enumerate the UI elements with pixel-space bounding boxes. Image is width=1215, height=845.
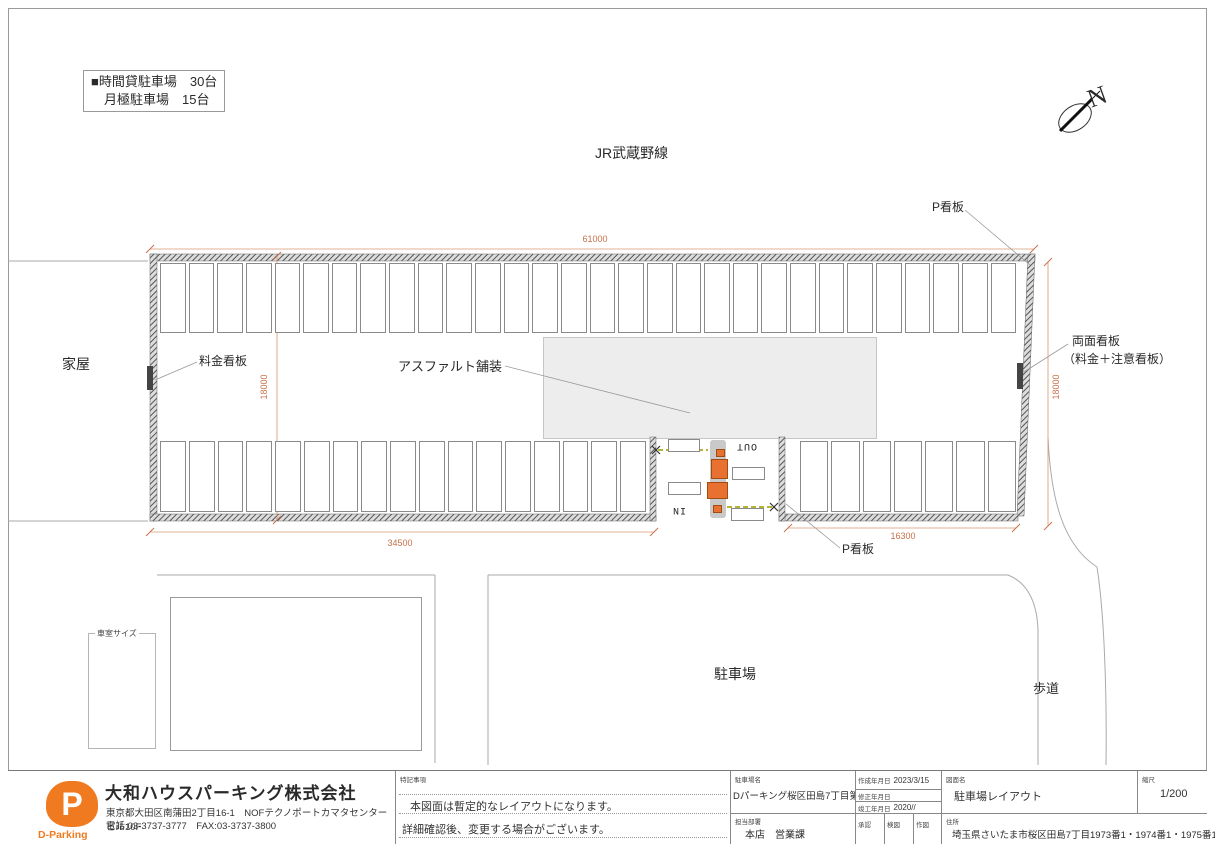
parking-area-label: 駐車場: [714, 664, 756, 684]
parking-stall: [360, 263, 386, 333]
completed-label: 竣工年月日: [858, 803, 891, 813]
parking-stall: [218, 441, 244, 512]
dim-top: 61000: [560, 234, 630, 244]
address-header: 住所: [946, 816, 959, 826]
parking-stall: [189, 263, 215, 333]
parking-stall: [800, 441, 828, 512]
dept-cell: 担当部署 本店 営業課: [730, 813, 855, 844]
dates-cell: 作成年月日 2023/3/15 修正年月日 竣工年月日 2020// 承認 検図…: [855, 771, 941, 844]
created-value: 2023/3/15: [894, 776, 930, 785]
double-sign-symbol: [1017, 363, 1023, 389]
site-name-value: Dパーキング桜区田島7丁目第1: [733, 788, 855, 802]
p-sign-bottom-label: P看板: [842, 540, 874, 557]
dim-right: 18000: [1051, 363, 1061, 411]
note-line-1: 本図面は暫定的なレイアウトになります。: [410, 798, 618, 814]
date-row-revised: 修正年月日: [856, 789, 942, 801]
parking-stall: [446, 263, 472, 333]
parking-stall: [847, 263, 873, 333]
title-block: P D-Parking 大和ハウスパーキング株式会社 東京都大田区南蒲田2丁目1…: [8, 770, 1207, 844]
parking-stall: [448, 441, 474, 512]
dim-left: 18000: [259, 363, 269, 411]
parking-stall: [676, 263, 702, 333]
lane-marker: [668, 439, 700, 452]
site-name-header: 駐車場名: [735, 774, 761, 784]
divider: [399, 837, 727, 838]
parking-stall: [476, 441, 502, 512]
note-line-2: 詳細確認後、変更する場合がございます。: [402, 821, 610, 837]
fee-sign-symbol: [147, 366, 153, 390]
parking-stall: [894, 441, 922, 512]
scale-header: 縮尺: [1142, 774, 1155, 784]
site-name-cell: 駐車場名 Dパーキング桜区田島7丁目第1: [730, 771, 855, 813]
parking-stall: [160, 441, 186, 512]
lane-marker: [668, 482, 701, 495]
stall-row-bottom-left: [160, 441, 646, 512]
parking-stall: [332, 263, 358, 333]
parking-stall: [962, 263, 988, 333]
drawing-name-cell: 図面名 駐車場レイアウト: [941, 771, 1137, 813]
parking-stall: [733, 263, 759, 333]
dim-bottom-right: 16300: [868, 531, 938, 541]
parking-stall: [246, 263, 272, 333]
p-sign-top-label: P看板: [932, 198, 964, 215]
parking-stall: [647, 263, 673, 333]
parking-stall: [475, 263, 501, 333]
address-cell: 住所 埼玉県さいたま市桜区田島7丁目1973番1・1974番1・1975番1: [941, 813, 1207, 844]
lane-marker: [732, 467, 765, 480]
parking-stall: [532, 263, 558, 333]
legend-line-monthly: 月極駐車場 15台: [91, 91, 217, 109]
address-value: 埼玉県さいたま市桜区田島7丁目1973番1・1974番1・1975番1: [952, 827, 1215, 841]
parking-stall: [819, 263, 845, 333]
d-parking-logo-icon: P: [46, 781, 98, 827]
lane-out-label: OUT: [736, 440, 757, 451]
company-cell: P D-Parking 大和ハウスパーキング株式会社 東京都大田区南蒲田2丁目1…: [8, 771, 395, 844]
loop-sensor: [716, 449, 725, 457]
approval-cell-label: 検図: [885, 822, 900, 829]
parking-stall: [333, 441, 359, 512]
approval-cell-label: 作図: [914, 822, 929, 829]
dim-bottom-left: 34500: [365, 538, 435, 548]
parking-stall: [534, 441, 560, 512]
parking-stall: [831, 441, 859, 512]
d-parking-logo-text: D-Parking: [38, 829, 88, 841]
parking-stall: [933, 263, 959, 333]
company-name: 大和ハウスパーキング株式会社: [105, 779, 357, 804]
parking-stall: [620, 441, 646, 512]
parking-stall: [418, 263, 444, 333]
sidewalk-label: 歩道: [1033, 678, 1059, 697]
fee-sign-label: 料金看板: [199, 352, 247, 369]
dept-value: 本店 営業課: [745, 826, 805, 841]
parking-stall: [876, 263, 902, 333]
date-row-completed: 竣工年月日 2020//: [856, 801, 942, 813]
double-sign-label-1: 両面看板: [1072, 332, 1120, 349]
parking-stall: [790, 263, 816, 333]
created-label: 作成年月日: [858, 775, 891, 785]
parking-stall: [217, 263, 243, 333]
parking-stall: [361, 441, 387, 512]
parking-stall: [704, 263, 730, 333]
house-bottom-outline: [170, 597, 422, 751]
notes-cell: 特記事項 本図面は暫定的なレイアウトになります。 詳細確認後、変更する場合がござ…: [395, 771, 730, 844]
parking-stall: [591, 441, 617, 512]
parking-stall: [761, 263, 787, 333]
railway-label: JR武蔵野線: [595, 143, 668, 163]
parking-stall: [246, 441, 272, 512]
company-tel: 電話:03-3737-3777 FAX:03-3737-3800: [106, 818, 276, 832]
parking-stall: [590, 263, 616, 333]
parking-stall: [988, 441, 1016, 512]
stall-row-top: [160, 263, 1016, 333]
stall-size-box: [88, 633, 156, 749]
revised-label: 修正年月日: [858, 791, 891, 801]
ticket-machine: [707, 482, 728, 499]
parking-stall: [956, 441, 984, 512]
approval-cells: 承認 検図 作図: [856, 813, 942, 844]
divider: [399, 813, 727, 814]
approval-cell-label: 承認: [856, 822, 871, 829]
legend-box: ■時間貸駐車場 30台 月極駐車場 15台: [83, 70, 225, 112]
legend-line-hourly: ■時間貸駐車場 30台: [91, 73, 217, 91]
parking-stall: [160, 263, 186, 333]
drawing-sheet: ■時間貸駐車場 30台 月極駐車場 15台 JR武蔵野線 N P看板 料金看板 …: [0, 0, 1215, 845]
drawing-name-header: 図面名: [946, 774, 966, 784]
stall-size-label: 車室サイズ: [95, 628, 139, 639]
house-left-label: 家屋: [62, 354, 90, 374]
parking-stall: [505, 441, 531, 512]
parking-stall: [618, 263, 644, 333]
scale-cell: 縮尺 1/200: [1137, 771, 1207, 813]
stall-row-bottom-right: [800, 441, 1016, 512]
dept-header: 担当部署: [735, 816, 761, 826]
lane-in-label: IN: [672, 504, 686, 515]
divider: [399, 794, 727, 795]
scale-value: 1/200: [1160, 788, 1188, 800]
parking-stall: [925, 441, 953, 512]
asphalt-label: アスファルト舗装: [398, 356, 502, 375]
parking-stall: [189, 441, 215, 512]
parking-stall: [905, 263, 931, 333]
parking-stall: [275, 263, 301, 333]
parking-stall: [419, 441, 445, 512]
notes-header: 特記事項: [400, 774, 426, 784]
parking-stall: [863, 441, 891, 512]
completed-value: 2020//: [894, 803, 916, 812]
parking-stall: [991, 263, 1017, 333]
lane-marker: [731, 508, 764, 521]
parking-stall: [389, 263, 415, 333]
date-row-created: 作成年月日 2023/3/15: [856, 771, 942, 789]
parking-stall: [563, 441, 589, 512]
parking-stall: [304, 441, 330, 512]
parking-stall: [504, 263, 530, 333]
parking-stall: [561, 263, 587, 333]
parking-stall: [303, 263, 329, 333]
parking-stall: [390, 441, 416, 512]
parking-stall: [275, 441, 301, 512]
gate-machine: [711, 459, 728, 479]
loop-sensor: [713, 505, 722, 513]
double-sign-label-2: （料金＋注意看板）: [1063, 350, 1171, 367]
drawing-name-value: 駐車場レイアウト: [954, 788, 1042, 804]
